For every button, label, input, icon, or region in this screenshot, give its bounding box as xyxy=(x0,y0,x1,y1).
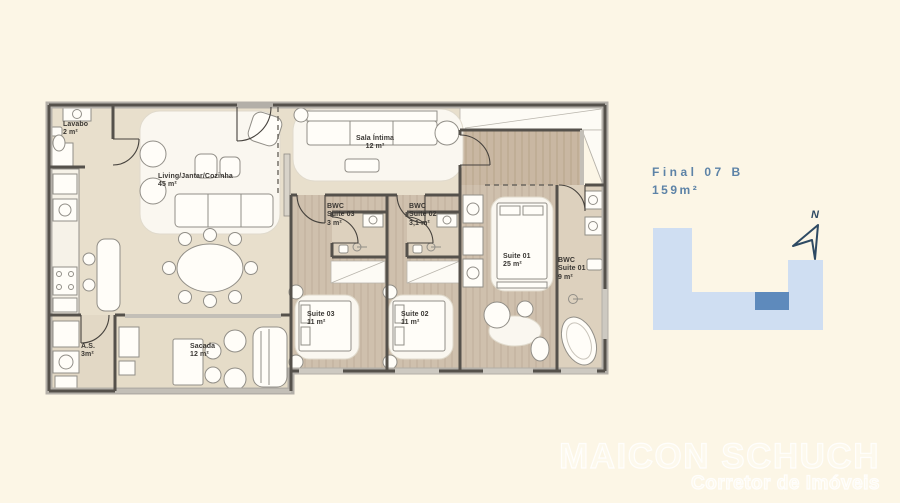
room-label-bwc-suite-01: BWC Suite 01 9 m² xyxy=(558,257,586,282)
building-footprint xyxy=(650,220,830,335)
room-label-living: Living/Jantar/Cozinha 45 m² xyxy=(158,173,233,190)
room-label-suite-01: Suite 01 25 m² xyxy=(503,253,531,270)
room-name: BWC xyxy=(409,203,437,211)
room-name: A.S. xyxy=(81,343,95,351)
room-label-suite-03: Suite 03 11 m² xyxy=(307,311,335,328)
room-area: 2 m² xyxy=(63,129,88,137)
room-label-sala-intima: Sala Íntima 12 m² xyxy=(315,135,435,152)
room-area: 12 m² xyxy=(315,143,435,151)
room-subname: Suite 02 xyxy=(409,211,437,219)
room-label-servico: A.S. 3m² xyxy=(81,343,95,360)
room-subname: Suite 01 xyxy=(558,265,586,273)
floor-plan: Lavabo 2 m² Living/Jantar/Cozinha 45 m² … xyxy=(45,99,611,395)
room-name: Sacada xyxy=(190,343,215,351)
servico-fixtures xyxy=(53,321,79,388)
building-outline xyxy=(653,228,823,330)
unit-location-marker xyxy=(755,292,789,310)
room-area: 9 m² xyxy=(558,274,586,282)
room-area: 45 m² xyxy=(158,181,233,189)
room-name: Lavabo xyxy=(63,121,88,129)
room-area: 3 m² xyxy=(327,220,355,228)
room-area: 3,1 m² xyxy=(409,220,437,228)
watermark-name: MAICON SCHUCH xyxy=(559,439,880,474)
room-name: Suite 01 xyxy=(503,253,531,261)
room-subname: Suite 03 xyxy=(327,211,355,219)
unit-area: 159m² xyxy=(652,183,699,197)
room-label-lavabo: Lavabo 2 m² xyxy=(63,121,88,138)
room-label-sacada: Sacada 12 m² xyxy=(190,343,215,360)
room-name: BWC xyxy=(327,203,355,211)
watermark-tagline: Corretor de Imóveis xyxy=(559,474,880,495)
room-name: Living/Jantar/Cozinha xyxy=(158,173,233,181)
room-label-bwc-suite-03: BWC Suite 03 3 m² xyxy=(327,203,355,228)
room-name: Sala Íntima xyxy=(315,135,435,143)
room-label-suite-02: Suite 02 11 m² xyxy=(401,311,429,328)
room-name: Suite 02 xyxy=(401,311,429,319)
room-area: 11 m² xyxy=(307,319,335,327)
room-area: 12 m² xyxy=(190,351,215,359)
room-area: 11 m² xyxy=(401,319,429,327)
room-label-bwc-suite-02: BWC Suite 02 3,1 m² xyxy=(409,203,437,228)
room-name: BWC xyxy=(558,257,586,265)
watermark: MAICON SCHUCH Corretor de Imóveis xyxy=(559,439,880,495)
room-name: Suite 03 xyxy=(307,311,335,319)
unit-title: Final 07 B xyxy=(652,165,744,179)
page: { "unit": { "label": "Final 07 B", "area… xyxy=(0,0,900,503)
room-area: 25 m² xyxy=(503,261,531,269)
room-area: 3m² xyxy=(81,351,95,359)
